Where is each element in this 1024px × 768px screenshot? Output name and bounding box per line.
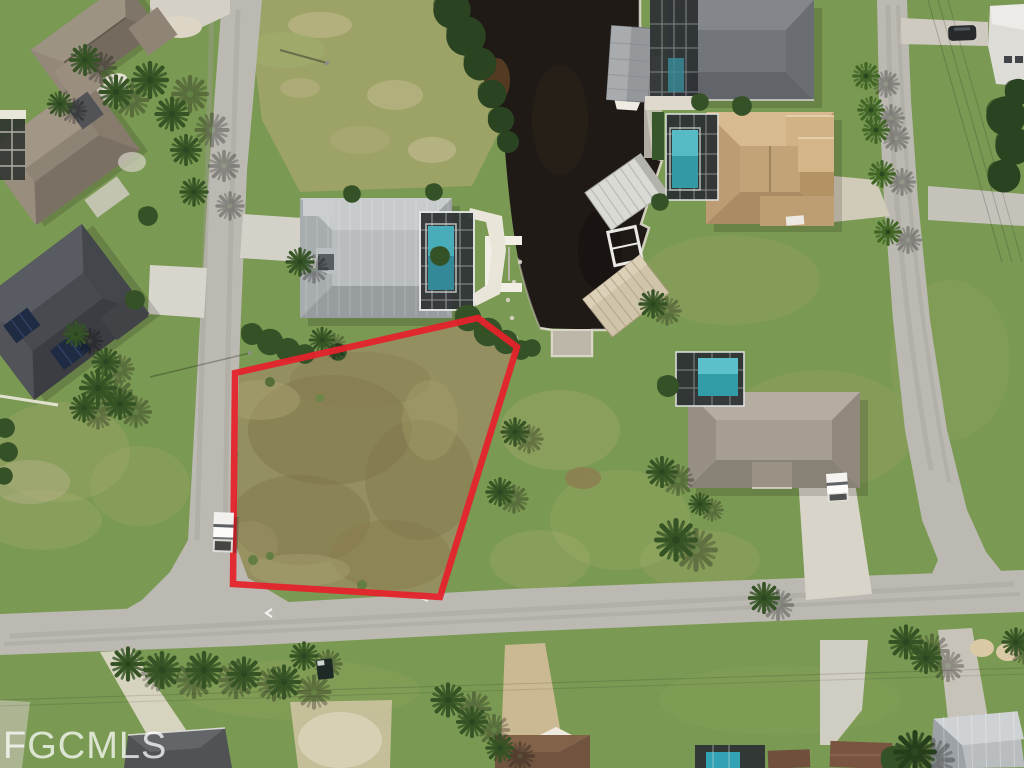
aerial-photo-canvas <box>0 0 1024 768</box>
mls-watermark: FGCMLS <box>3 727 167 765</box>
aerial-photo: FGCMLS <box>0 0 1024 768</box>
photo-tint <box>0 0 1024 768</box>
